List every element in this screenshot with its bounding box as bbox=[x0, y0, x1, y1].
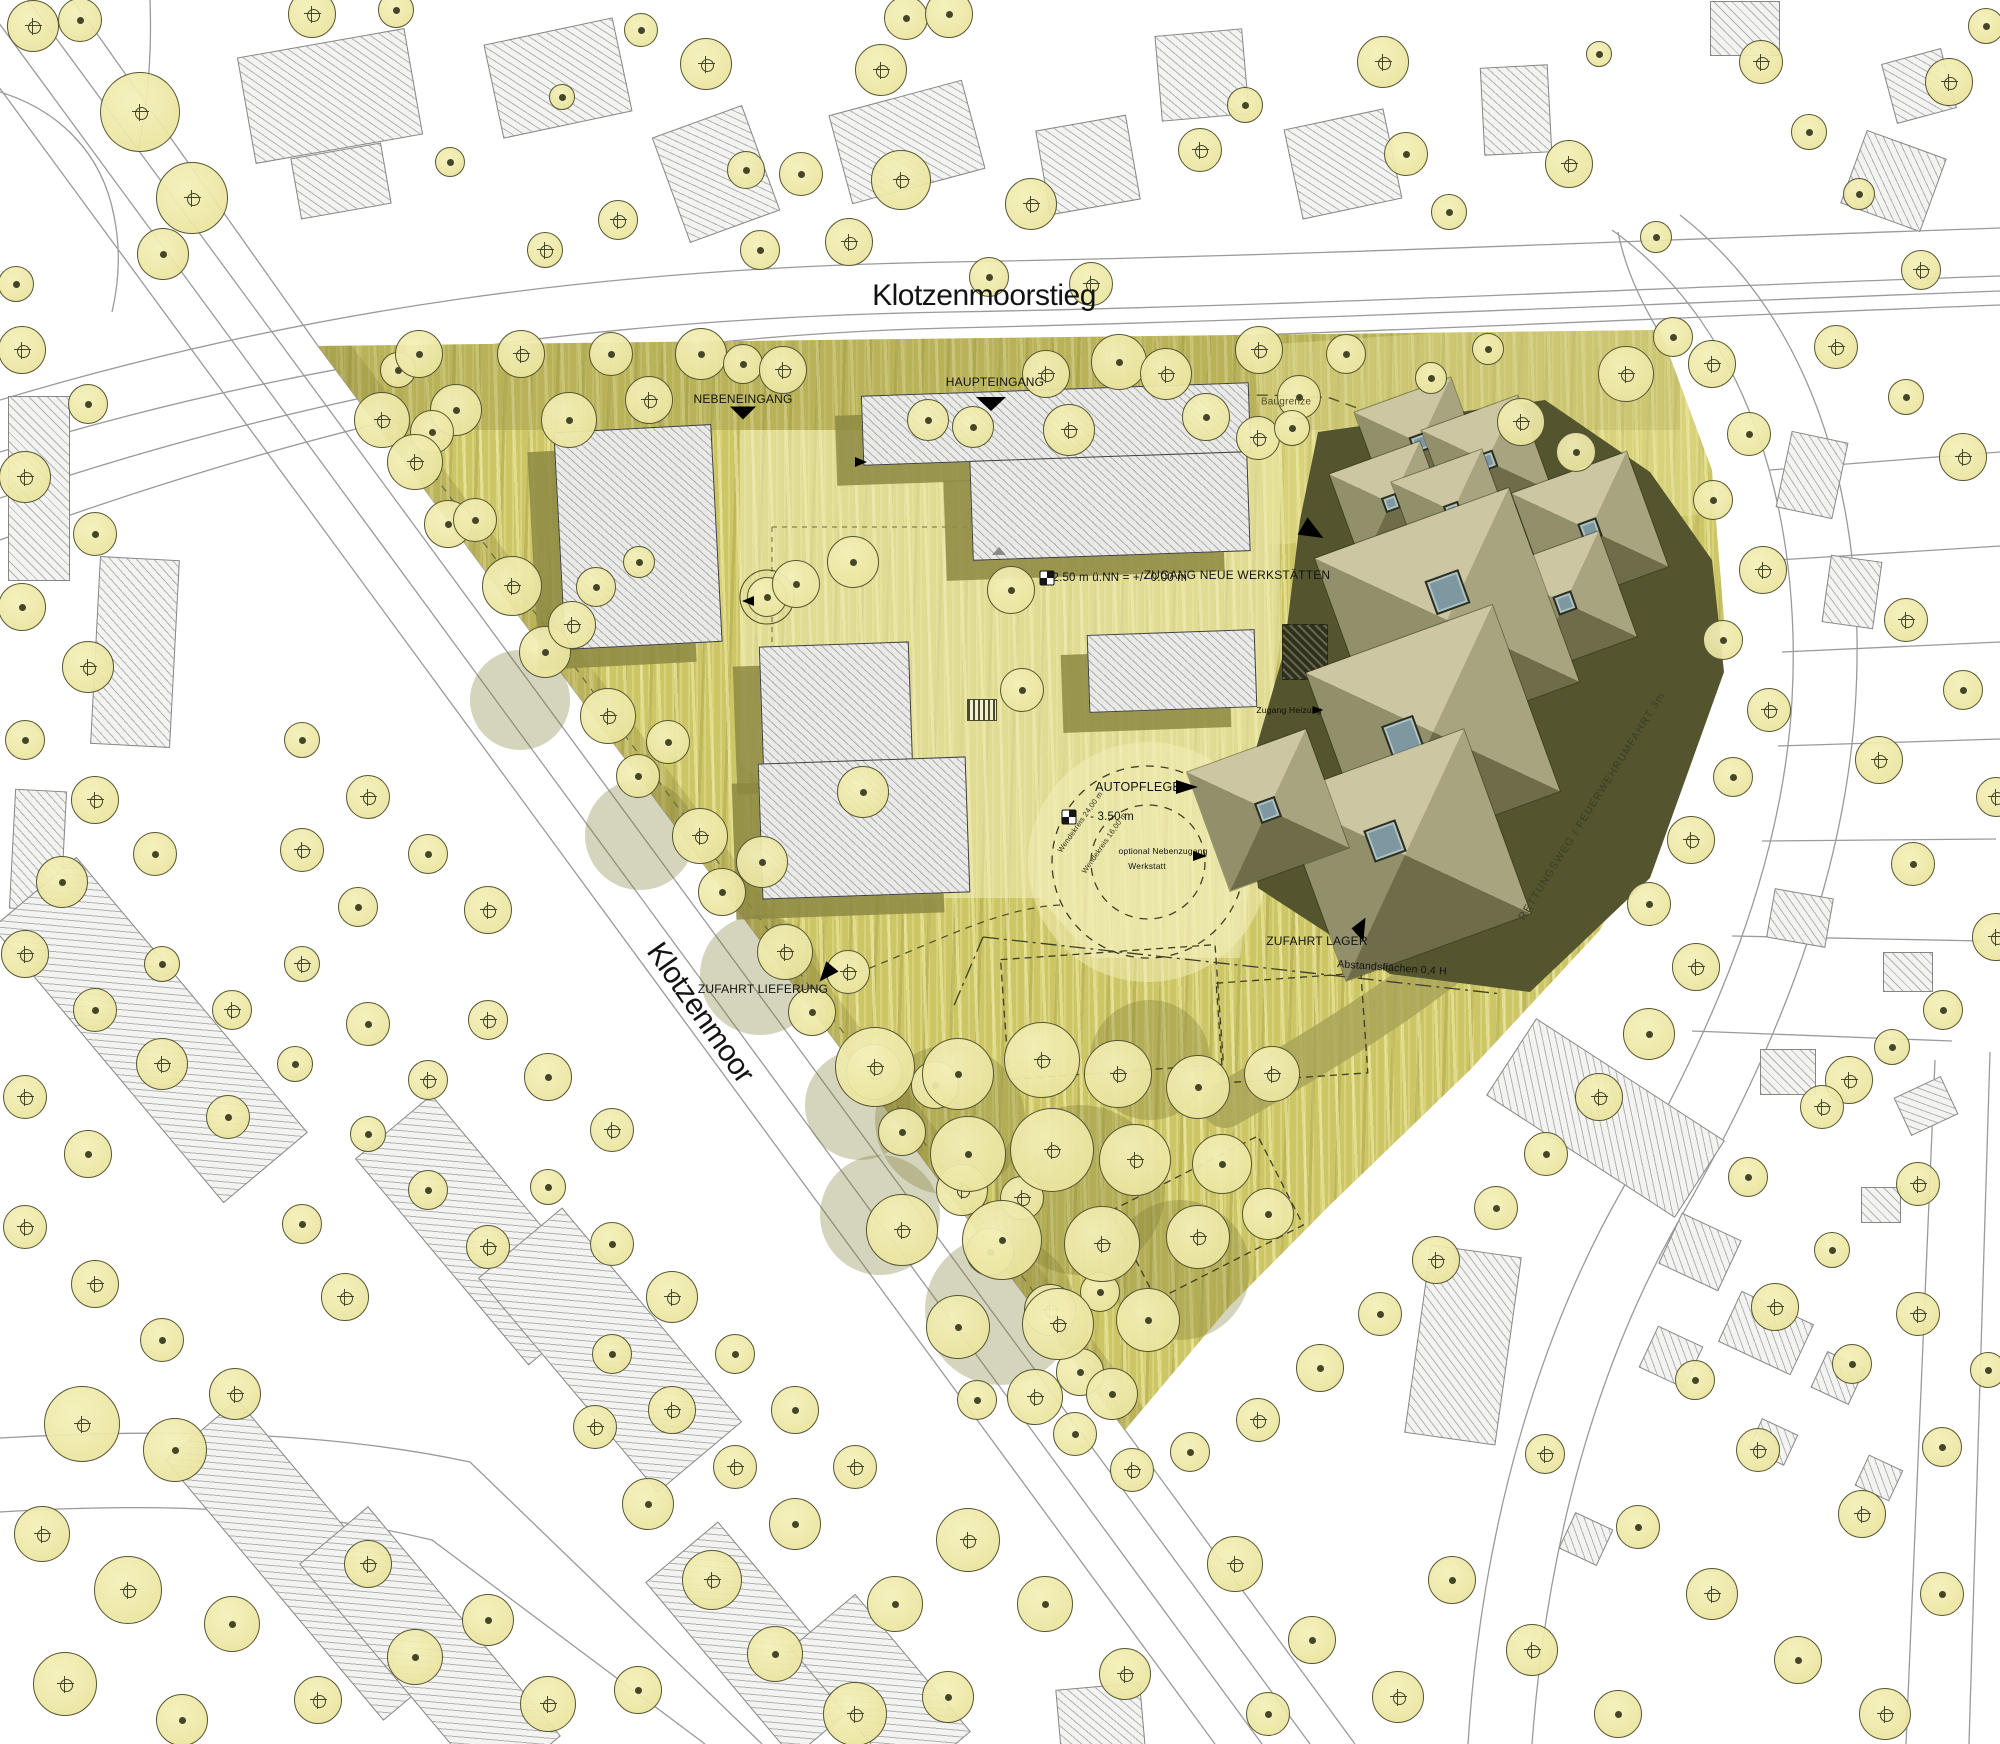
direction-arrow-icon bbox=[1193, 851, 1207, 861]
level-benchmark-icon bbox=[1040, 571, 1055, 586]
annotation-label: HAUPTEINGANG bbox=[946, 375, 1044, 389]
level-benchmark-icon bbox=[1062, 810, 1077, 825]
direction-arrow-icon bbox=[992, 547, 1006, 555]
street-label: Klotzenmoorstieg bbox=[872, 279, 1096, 313]
direction-arrow-icon bbox=[1176, 780, 1198, 794]
direction-arrow-icon bbox=[1298, 517, 1329, 546]
annotation-label: ZUGANG NEUE WERKSTÄTTEN bbox=[1144, 568, 1331, 582]
site-plan-canvas: KlotzenmoorstiegKlotzenmoorNEBENEINGANGH… bbox=[0, 0, 2000, 1744]
direction-arrow-icon bbox=[1313, 706, 1324, 714]
direction-arrow-icon bbox=[742, 596, 754, 606]
annotation-label: RETTUNGSWEG / FEUERWEHRUMFAHRT 3m bbox=[1516, 690, 1667, 922]
annotation-layer: KlotzenmoorstiegKlotzenmoorNEBENEINGANGH… bbox=[0, 0, 2000, 1744]
annotation-label: Abstandsflächen 0,4 H bbox=[1337, 958, 1447, 978]
annotation-label: NEBENEINGANG bbox=[693, 392, 792, 406]
direction-arrow-icon bbox=[730, 407, 756, 420]
annotation-label: Baugrenze bbox=[1261, 397, 1311, 408]
direction-arrow-icon bbox=[1350, 916, 1365, 941]
annotation-label: Werkstatt bbox=[1128, 861, 1166, 871]
street-label: Klotzenmoor bbox=[639, 937, 760, 1090]
direction-arrow-icon bbox=[855, 457, 867, 467]
annotation-label: AUTOPFLEGE bbox=[1095, 780, 1181, 794]
annotation-label: ZUFAHRT LIEFERUNG bbox=[698, 982, 828, 996]
direction-arrow-icon bbox=[976, 397, 1006, 411]
